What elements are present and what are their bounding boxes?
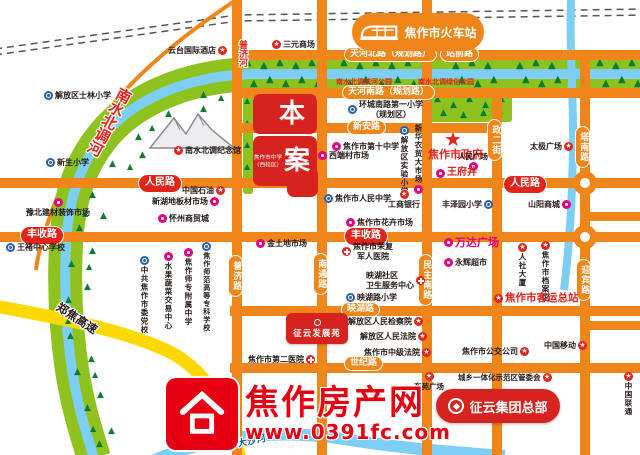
tree-icon: ▲ — [84, 283, 91, 292]
gov-icon — [422, 348, 431, 357]
poi-label: 映湖社区卫生服务中心 — [366, 271, 414, 290]
poi-label: 焦作市中级法院 — [364, 348, 420, 358]
project-block-north: 本 — [253, 94, 317, 134]
project-note: 焦作市中学 （西校区） — [254, 154, 283, 168]
school-icon — [484, 200, 493, 209]
poi-label: 人社大厦 — [518, 253, 527, 287]
gov-icon — [518, 243, 527, 252]
tree-icon: ▲ — [450, 101, 457, 110]
train-icon — [359, 22, 399, 42]
poi: 解放区实验小学 — [400, 126, 409, 196]
road-name-label: 丰收路 — [20, 226, 64, 245]
poi: 焦作师专附属中学 — [184, 248, 193, 326]
poi: 新生小学 — [46, 158, 89, 168]
tree-icon: ▲ — [67, 332, 74, 341]
poi: 丰泽园小学 — [442, 200, 493, 210]
tree-icon: ▲ — [490, 75, 498, 85]
poi-label: 新湖地板材市场 — [152, 197, 208, 207]
hospital-icon — [416, 276, 425, 285]
tree-icon: ▲ — [96, 440, 103, 449]
market-icon — [346, 218, 355, 227]
poi-label: 云台国际酒店 — [168, 46, 216, 56]
poi-label: 人民广场 — [458, 152, 488, 161]
poi-label: 丰泽园小学 — [442, 200, 482, 210]
poi: 万达广场 — [444, 236, 499, 249]
school-icon — [140, 256, 149, 265]
site-url: www.0391fc.com — [245, 422, 451, 442]
tree-icon: ▲ — [440, 109, 447, 118]
poi-label: 金土地市场 — [267, 239, 307, 249]
poi: 焦作市公交公司 — [462, 347, 529, 357]
poi: 山阳商城 — [528, 200, 571, 210]
poi-label: 王府井 — [447, 167, 477, 179]
gov-icon — [272, 40, 281, 49]
gov-icon — [174, 146, 183, 155]
road-name-label: 世纪路 — [344, 356, 383, 371]
poi: 焦作师范高等专科学校 — [202, 242, 211, 332]
hospital-icon — [342, 247, 351, 256]
poi: 西端村市场 — [318, 151, 369, 161]
road-name-label: 塔南路 — [575, 126, 590, 168]
poi-label: 环城南路第一小学（规划区） — [359, 100, 423, 119]
gov-icon — [564, 142, 573, 151]
poi: 焦作市中级法院 — [364, 348, 431, 358]
poi: 城乡一体化示范区管委会 — [458, 373, 552, 382]
gov-icon — [400, 190, 409, 199]
poi-label: 山阳商城 — [528, 200, 560, 210]
roundabout — [573, 171, 597, 195]
school-icon — [6, 243, 15, 252]
development-project-badge: 征云发展苑 — [286, 313, 348, 344]
tree-icon: ▲ — [484, 61, 492, 71]
market-icon — [332, 142, 341, 151]
road-name-label: 普济路 — [228, 255, 243, 297]
poi: 新湖地板材市场 — [152, 197, 219, 207]
poi-label: 南水北调纪念馆 — [185, 146, 241, 156]
tree-icon: ▲ — [86, 263, 92, 271]
poi-label: 焦作市人民中学 — [335, 194, 391, 204]
poi-label: 万达广场 — [455, 236, 499, 249]
poi-label: 焦作师范高等专科学校 — [202, 252, 210, 332]
tree-icon: ▲ — [200, 91, 207, 100]
market-icon — [54, 198, 63, 207]
market-icon — [158, 214, 167, 223]
road-name-label: 天河南路（规划路） — [342, 85, 435, 100]
gov-icon — [494, 294, 503, 303]
tree-icon: ▲ — [108, 427, 115, 436]
poi-label: 焦作市公交公司 — [462, 347, 518, 357]
market-icon — [184, 248, 193, 257]
poi: 焦作市客运总站 — [494, 292, 579, 305]
road-segment — [237, 50, 640, 60]
tree-icon: ▲ — [292, 61, 300, 71]
school-icon — [400, 126, 409, 135]
tree-icon: ▲ — [548, 61, 556, 71]
tree-icon: ▲ — [100, 212, 107, 221]
hospital-icon — [306, 355, 315, 364]
school-icon — [44, 91, 53, 100]
poi-label: 三元商场 — [283, 40, 315, 50]
road-segment — [580, 57, 590, 455]
poi: 解放区士林小学 — [44, 91, 111, 101]
memorial-sculpture-icon — [146, 108, 238, 150]
poi-label: 太极广场 — [530, 142, 562, 152]
road-segment — [585, 321, 640, 330]
gov-icon — [216, 186, 225, 195]
poi-label: 城乡一体化示范区管委会 — [458, 373, 541, 382]
market-icon — [562, 200, 571, 209]
poi: 映湖路小学 — [346, 293, 397, 303]
tree-icon: ▲ — [612, 61, 620, 71]
poi-label: 焦作市第二医院 — [248, 355, 304, 365]
school-icon — [348, 105, 357, 114]
poi: 人社大厦 — [518, 243, 527, 287]
tree-icon: ▲ — [139, 151, 146, 160]
tree-icon: ▲ — [260, 61, 268, 71]
tree-icon: ▲ — [135, 133, 142, 142]
poi: 焦作市第二医院 — [248, 355, 315, 365]
tree-icon: ▲ — [298, 75, 306, 85]
tree-icon: ▲ — [68, 260, 75, 269]
poi: 云台国际酒店 — [168, 46, 227, 56]
poi-label: 工商银行 — [388, 200, 420, 210]
poi: 新华农贸大市场 — [414, 124, 423, 194]
tree-icon: ▲ — [244, 163, 250, 171]
tree-icon: ▲ — [92, 371, 98, 379]
poi: 中国联通 — [624, 372, 633, 416]
gov-icon — [218, 46, 227, 55]
tree-icon: ▲ — [388, 61, 396, 71]
gov-icon — [414, 317, 423, 326]
poi: 豫北建材装饰市场 — [26, 198, 90, 218]
poi-label: 新华农贸大市场 — [414, 124, 423, 184]
tree-icon: ▲ — [84, 404, 91, 413]
poi: 王府井 — [436, 167, 477, 179]
road-name-label: 人民路 — [503, 175, 547, 194]
project-block-south: 焦作市中学 （西校区） 案 — [253, 136, 317, 186]
poi: 焦作市人民中学 — [324, 194, 391, 204]
poi: 王褚中心学校 — [6, 243, 65, 253]
market-icon — [318, 151, 327, 160]
tree-icon: ▲ — [554, 75, 562, 85]
school-icon — [346, 293, 355, 302]
school-icon — [324, 194, 333, 203]
poi: 南水北调纪念馆 — [174, 146, 241, 156]
gov-icon — [578, 341, 587, 350]
gov-icon — [541, 241, 550, 250]
tree-icon: ▲ — [90, 425, 96, 433]
tree-icon: ▲ — [97, 391, 104, 400]
group-headquarters-label: 征云集团总部 — [469, 397, 547, 416]
tree-icon: ▲ — [109, 160, 116, 169]
waterway-name-label: 普济河 — [236, 40, 249, 67]
tree-icon: ▲ — [618, 75, 626, 85]
market-icon — [444, 258, 453, 267]
road-name-label: 政二街 — [487, 119, 502, 161]
poi-label: 西端村市场 — [329, 151, 369, 161]
poi: 焦作市花卉市场 — [346, 218, 413, 228]
poi-label: 水果蔬菜交易中心 — [164, 262, 173, 330]
tree-icon: ▲ — [244, 97, 250, 105]
site-logo-icon — [166, 378, 238, 450]
poi-label: 解放区人民检察院 — [348, 317, 412, 327]
poi: 永辉超市 — [444, 258, 487, 268]
poi: 解放区人民法院 — [360, 332, 427, 342]
poi: 太极广场 — [530, 142, 573, 152]
gov-icon — [520, 347, 529, 356]
poi: 怀州商贸城 — [158, 214, 209, 224]
poi-label: 焦作市荣复军人医院 — [353, 242, 393, 261]
poi: 三元商场 — [272, 40, 315, 50]
poi-label: 中共焦作市委党校 — [140, 266, 149, 334]
tree-icon: ▲ — [89, 247, 96, 256]
poi-label: 焦作市花卉市场 — [357, 218, 413, 228]
market-icon — [256, 239, 265, 248]
road-name-label: 南通路 — [313, 253, 328, 295]
poi: 中国移动 — [544, 341, 587, 351]
poi-label: 新生小学 — [57, 158, 89, 168]
poi-label: 中国联通 — [624, 382, 633, 416]
site-name: 焦作房产网 — [245, 386, 451, 420]
tree-icon: ▲ — [394, 75, 402, 85]
tree-icon: ▲ — [244, 141, 250, 149]
tree-icon: ▲ — [356, 61, 364, 71]
road-name-label: 人民路 — [138, 174, 182, 193]
site-watermark: 焦作房产网 www.0391fc.com — [166, 374, 466, 454]
poi-label: 南水北调滨河公园 — [336, 78, 392, 86]
poi: 解放区人民检察院 — [348, 317, 423, 327]
poi-label: 中国石油 — [182, 186, 214, 196]
gov-icon — [418, 332, 427, 341]
road-name-label: 新安路 — [347, 120, 386, 135]
poi-label: 解放区士林小学 — [55, 91, 111, 101]
poi: 中国石油 — [182, 186, 225, 196]
poi-label: 中国移动 — [544, 341, 576, 351]
market-icon — [210, 197, 219, 206]
tree-icon: ▲ — [266, 75, 274, 85]
road-segment — [585, 212, 640, 221]
poi-label: 永辉超市 — [455, 258, 487, 268]
poi-label: 南水北调绿化公园 — [418, 78, 474, 86]
tree-icon: ▲ — [88, 355, 95, 364]
tree-icon: ▲ — [516, 61, 524, 71]
tree-icon: ▲ — [480, 109, 487, 118]
school-icon — [46, 158, 55, 167]
project-char-2: 案 — [284, 148, 310, 174]
tree-icon: ▲ — [218, 94, 224, 102]
poi-label: 解放区实验小学 — [400, 136, 409, 196]
railway-station-label: 焦作市火车站 — [404, 24, 476, 41]
tree-icon: ▲ — [452, 61, 460, 71]
tree-icon: ▲ — [460, 111, 467, 120]
poi-label: 豫北建材装饰市场 — [26, 208, 90, 218]
tree-icon: ▲ — [89, 191, 96, 200]
market-icon — [436, 169, 445, 178]
poi: 焦作市荣复军人医院 — [342, 242, 393, 261]
poi: 工商银行 — [388, 190, 420, 210]
government-star-icon: ★ — [444, 127, 462, 151]
poi: 南水北调滨河公园 — [336, 78, 392, 86]
poi: 中共焦作市委党校 — [140, 256, 149, 334]
tree-icon: ▲ — [74, 368, 81, 377]
poi-label: 怀州商贸城 — [169, 214, 209, 224]
gov-icon — [624, 372, 633, 381]
poi: 南水北调绿化公园 — [418, 78, 474, 86]
poi-label: 焦作师专附属中学 — [184, 258, 193, 326]
poi-label: 解放区人民法院 — [360, 332, 416, 342]
poi-label: 焦作市客运总站 — [505, 292, 579, 305]
poi-label: 映湖路小学 — [357, 293, 397, 303]
market-icon — [164, 252, 173, 261]
school-icon — [202, 242, 211, 251]
railway-station-badge: 焦作市火车站 — [352, 13, 484, 51]
gov-icon — [543, 373, 552, 382]
developer-logo-icon — [314, 319, 321, 326]
poi-label: 王褚中心学校 — [17, 243, 65, 253]
poi: 金土地市场 — [256, 239, 307, 249]
poi: 水果蔬菜交易中心 — [164, 252, 173, 330]
tree-icon: ▲ — [522, 75, 530, 85]
tree-icon: ▲ — [127, 163, 133, 171]
market-icon — [444, 238, 453, 247]
project-char-1: 本 — [279, 101, 305, 127]
development-project-label: 征云发展苑 — [293, 327, 341, 339]
location-map: ▲▲▲▲▲▲▲▲▲▲▲▲▲▲▲▲▲▲▲▲▲▲▲▲▲▲▲▲▲▲▲▲▲▲▲▲▲▲▲▲… — [0, 0, 640, 455]
roundabout — [573, 225, 597, 249]
poi: 环城南路第一小学（规划区） — [348, 100, 423, 119]
poi: 映湖社区卫生服务中心 — [366, 271, 425, 290]
